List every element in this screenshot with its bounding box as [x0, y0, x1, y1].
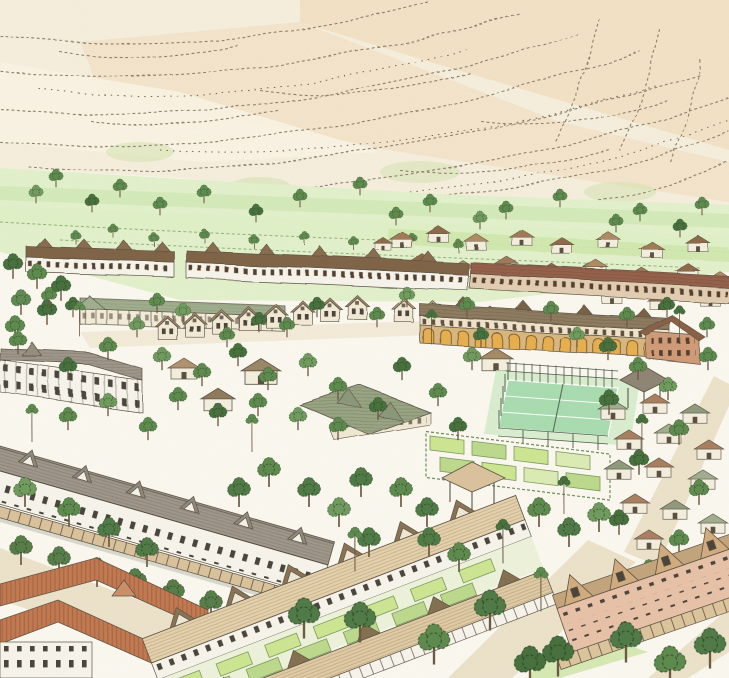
- architectural-rendering: [0, 0, 729, 678]
- paper-grain-overlay: [0, 0, 729, 678]
